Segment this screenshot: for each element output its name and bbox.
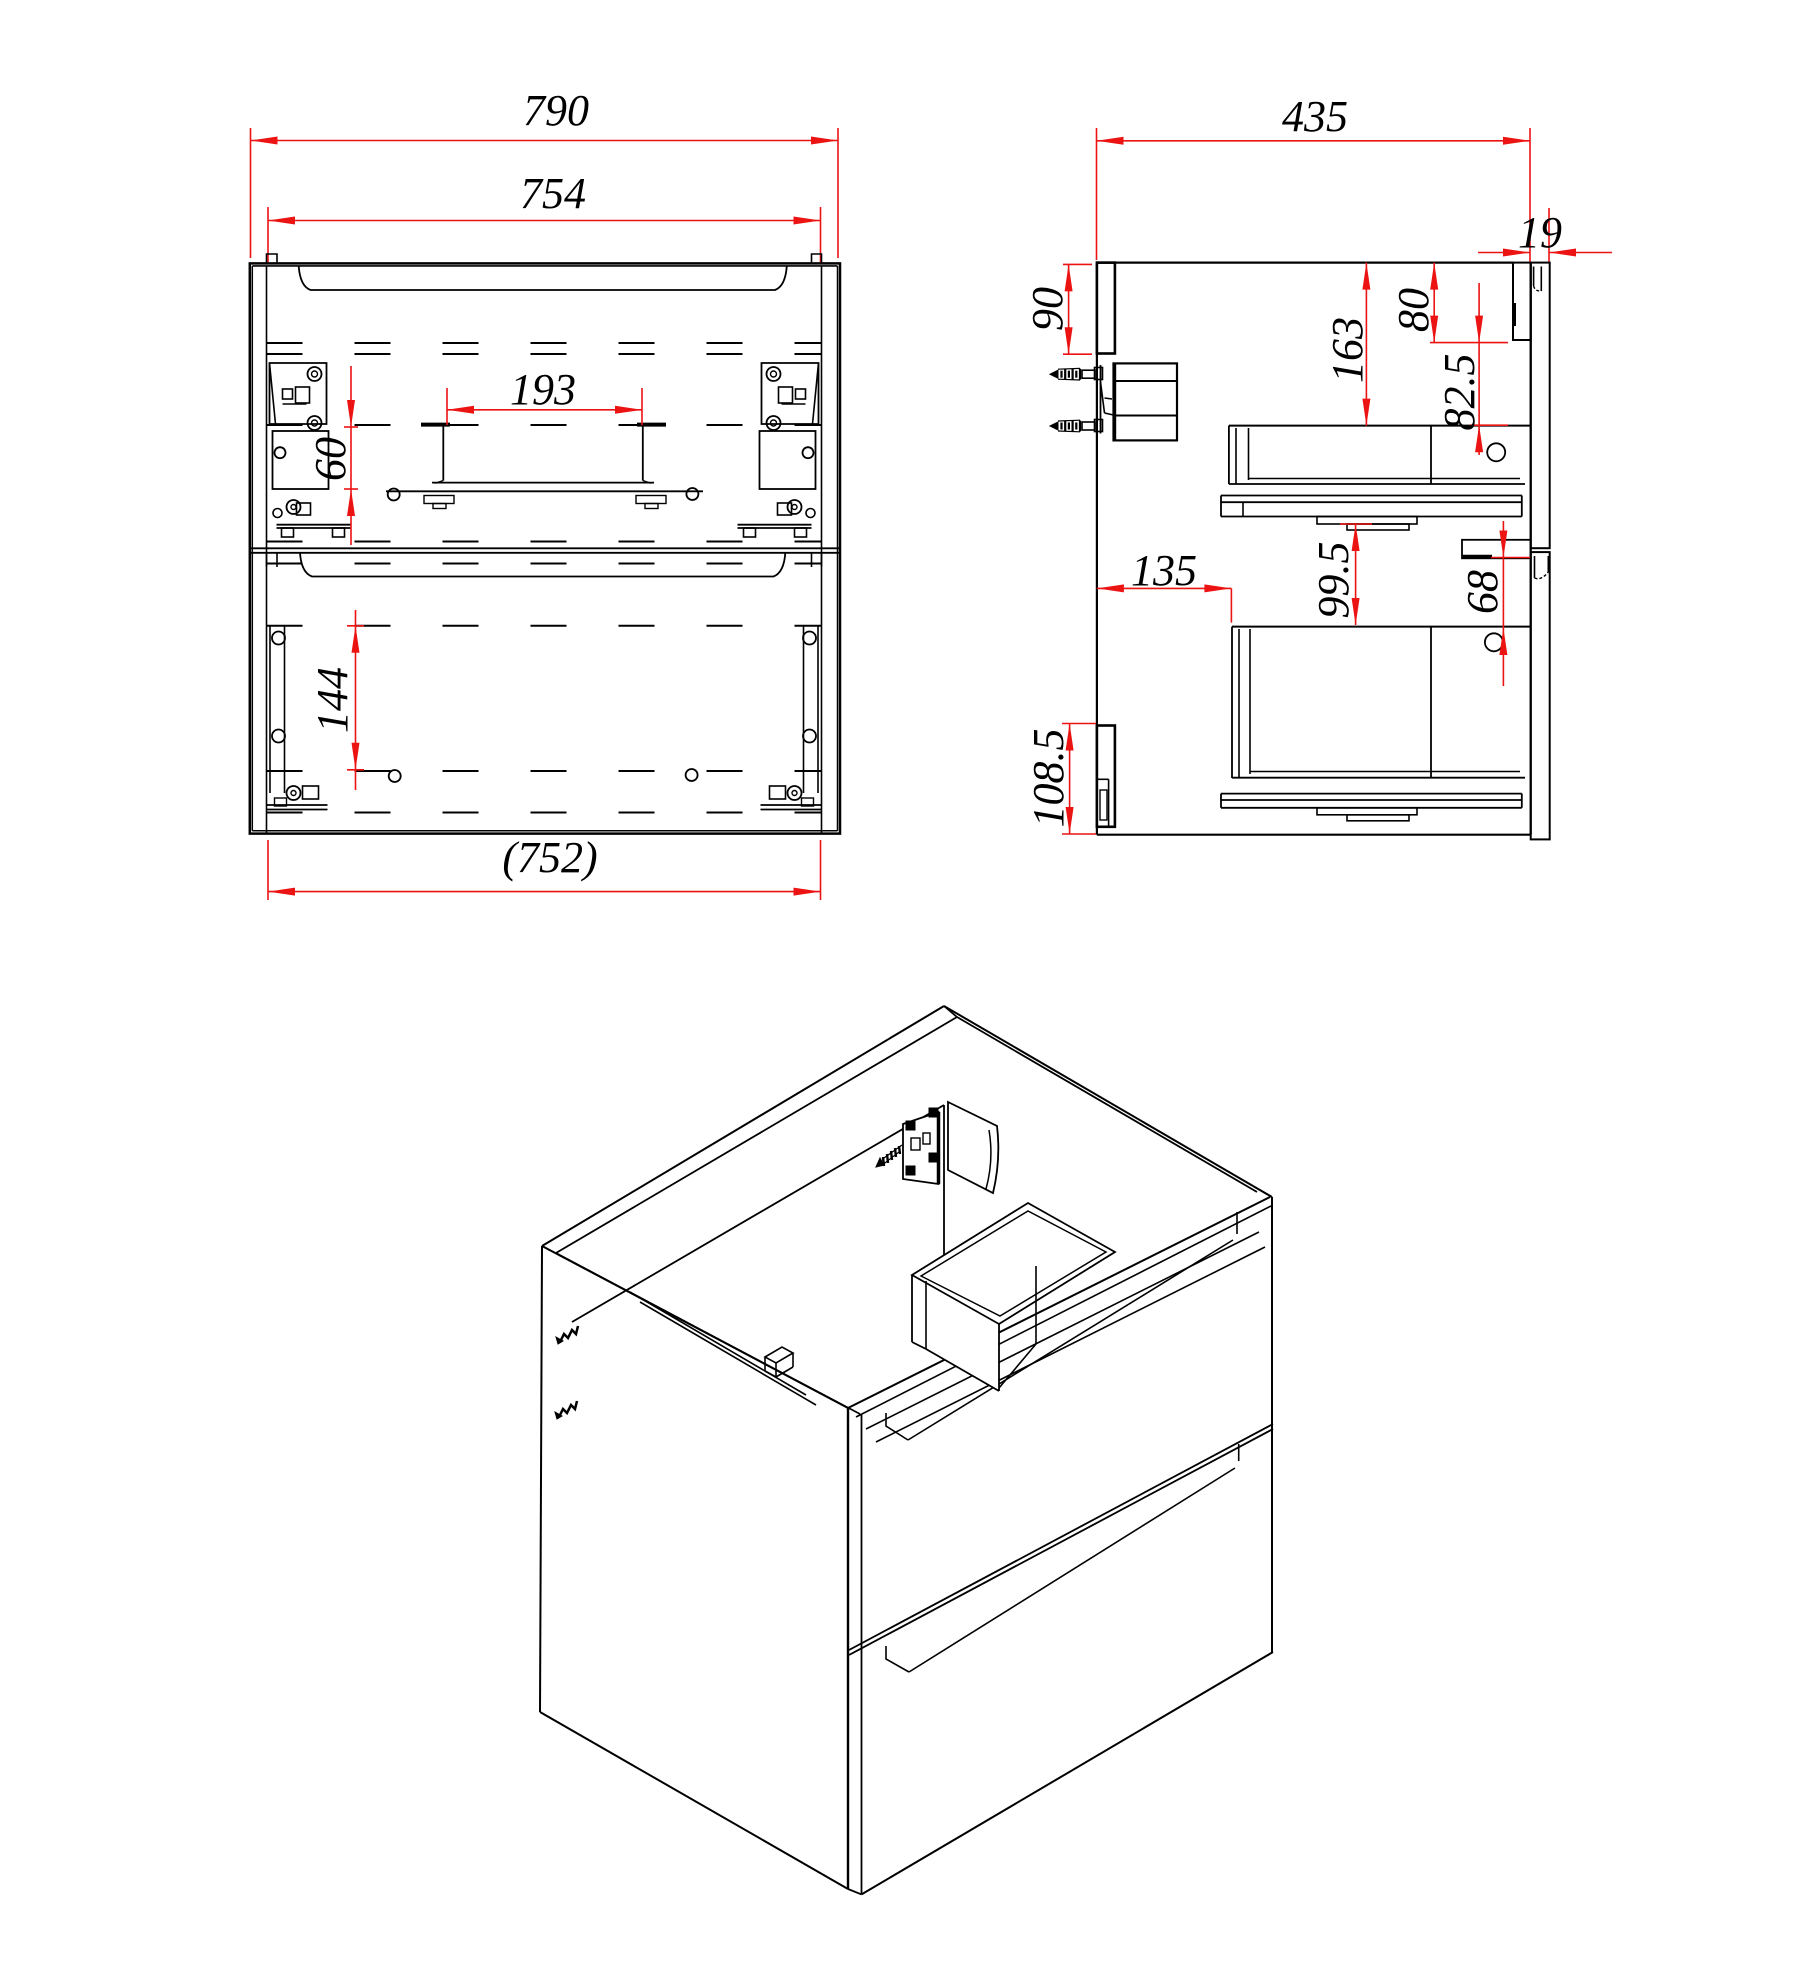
svg-text:790: 790 bbox=[523, 86, 589, 135]
svg-text:68: 68 bbox=[1458, 570, 1507, 614]
svg-text:108.5: 108.5 bbox=[1024, 729, 1073, 828]
svg-text:163: 163 bbox=[1323, 317, 1372, 383]
svg-text:80: 80 bbox=[1389, 288, 1438, 332]
svg-text:90: 90 bbox=[1023, 287, 1072, 331]
svg-text:193: 193 bbox=[510, 365, 576, 414]
svg-text:60: 60 bbox=[306, 437, 355, 481]
svg-text:(752): (752) bbox=[502, 833, 597, 882]
svg-text:144: 144 bbox=[308, 667, 357, 733]
svg-text:435: 435 bbox=[1282, 92, 1348, 141]
svg-text:19: 19 bbox=[1518, 208, 1562, 257]
svg-text:99.5: 99.5 bbox=[1309, 542, 1358, 619]
svg-text:135: 135 bbox=[1131, 546, 1197, 595]
svg-text:82.5: 82.5 bbox=[1435, 354, 1484, 431]
svg-text:754: 754 bbox=[520, 169, 586, 218]
